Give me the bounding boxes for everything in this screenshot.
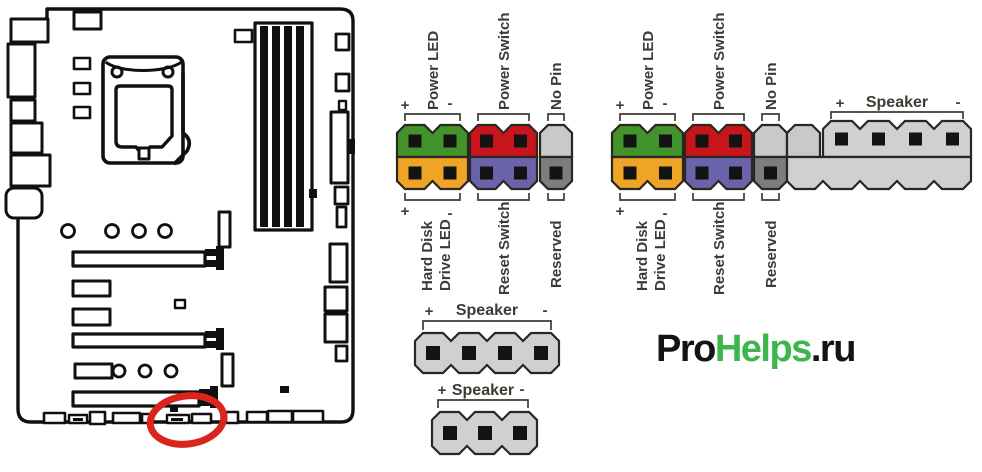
mounting-hole [106,225,119,238]
fan-header [74,12,101,29]
pin-hole [498,346,512,360]
no-pin-position [787,125,820,157]
speaker-bracket [831,112,963,119]
power-led-bracket [620,114,675,121]
no-pin-bracket [762,114,779,121]
small-component [280,386,289,393]
io-port [11,123,42,153]
bottom-header [113,413,140,423]
pin-hole [729,135,742,148]
pin-hole [835,133,848,146]
labels: + Speaker - [438,381,525,399]
plus-label: + [836,95,845,112]
io-port [11,155,50,186]
speaker-label: Speaker [456,302,518,319]
brackets [423,321,551,330]
speaker-label: Speaker [452,382,514,399]
bottom-header [226,412,238,423]
pin-hole [696,167,709,180]
labels: + Speaker - [425,302,548,320]
power-led-bracket [405,114,460,121]
power-switch-bracket [478,114,529,121]
logo-part-pro: Pro [656,328,715,370]
pin-hole [444,135,457,148]
power-switch-bracket [693,114,744,121]
small-component [175,300,185,308]
pin-hole [443,426,457,440]
hdd-led-bracket [405,193,460,200]
hdd-led-pins [612,157,683,189]
capacitor [74,83,90,94]
pin-hole [444,167,457,180]
prohelps-logo: ProHelps.ru [656,328,855,371]
pin-hole [480,135,493,148]
front-panel-speaker-connector-diagram: + - Power LED Power Switch No Pin + Spea… [608,0,982,300]
dimm-slot-bar [272,26,280,227]
no-pin-position [540,125,572,157]
pin-hole [409,167,422,180]
power-switch-label: Power Switch [496,12,513,110]
reset-switch-bracket [693,193,744,200]
dimm-slot-bar [284,26,292,227]
small-component [170,406,178,412]
plus-label: + [438,382,447,399]
speaker-bracket [438,400,528,408]
speaker-3pin-diagram: + Speaker - [400,378,600,472]
minus-label: - [543,302,548,319]
dimm-slot-bar [260,26,268,227]
edge-connector [336,74,349,91]
pin-hole [462,346,476,360]
minus-label: - [956,94,961,111]
hdd-led-label-line1: Hard Disk [419,220,436,291]
pin-hole [872,133,885,146]
capacitor [74,107,90,118]
minus-label: - [663,95,668,112]
reserved-bracket [548,193,564,200]
pcie-slot-short [73,281,110,296]
io-port [11,100,35,121]
slot-latch [216,246,224,270]
pin-hole [659,135,672,148]
plus-label: + [401,97,410,114]
speaker-bracket [423,321,551,330]
header-pins-detail [171,418,183,421]
edge-connector [335,187,348,204]
pin-hole [480,167,493,180]
sata-connector [325,314,347,342]
hdd-led-label-line1: Hard Disk [634,220,651,291]
pin-hole [514,135,527,148]
minus-label: - [448,95,453,112]
edge-connector [339,101,346,110]
mounting-hole [113,365,125,377]
plus-label: + [616,203,625,220]
hdd-led-pins [397,157,468,189]
pcie-slot [73,334,205,347]
no-pin-position [754,125,787,157]
power-led-label: Power LED [425,31,442,110]
bottom-header [90,412,105,424]
cpu-socket-tab [139,148,149,159]
io-port [11,19,48,42]
sata-connector [330,244,347,282]
reset-switch-bracket [478,193,529,200]
reset-switch-label: Reset Switch [496,202,513,295]
pcie-slot [73,252,205,266]
reserved-bracket [762,193,779,200]
blank-pin-area [787,157,971,189]
no-pin-bracket [548,114,564,121]
pin-hole [514,167,527,180]
pin-hole [624,135,637,148]
hdd-led-label-line2: Drive LED [652,219,669,291]
hdd-led-label-line2: Drive LED [437,219,454,291]
edge-connector [336,34,349,50]
header-pins-detail [73,418,83,421]
bottom-header [293,411,323,422]
pin-hole [478,426,492,440]
logo-part-ru: .ru [811,328,855,370]
m2-connector [219,212,230,247]
speaker-4pin-diagram: + Speaker - [393,295,603,385]
small-component [235,30,252,42]
motherboard-diagram [0,0,370,472]
mounting-hole [133,225,146,238]
reset-switch-label: Reset Switch [711,202,728,295]
power-switch-label: Power Switch [711,12,728,110]
mounting-hole [159,225,172,238]
edge-connector [336,346,347,361]
reserved-label: Reserved [548,220,565,288]
pcie-slot-short [75,364,112,378]
bottom-header [44,413,65,423]
pin-hole [659,167,672,180]
page: + - Power LED Power Switch No Pin + - Ha… [0,0,982,472]
minus-label: - [520,381,525,398]
cpu-socket-inner [116,86,172,152]
mounting-hole [165,365,177,377]
no-pin-label: No Pin [763,63,780,111]
pin-hole [946,133,959,146]
power-led-label: Power LED [640,31,657,110]
m2-connector [222,354,233,386]
capacitor [74,58,90,69]
reserved-label: Reserved [763,220,780,288]
speaker-label: Speaker [866,94,928,111]
pcie-slot-short [73,309,110,325]
front-panel-connector-diagram: + - Power LED Power Switch No Pin + - Ha… [390,0,590,300]
power-led-pins [397,125,468,157]
no-pin-label: No Pin [548,63,565,111]
pin-hole [513,426,527,440]
io-port [8,44,35,97]
bottom-header [192,414,211,423]
brackets [438,400,528,408]
hdd-led-bracket [620,193,675,200]
pin-hole [409,135,422,148]
pin-hole [729,167,742,180]
dimm-tab [309,189,317,198]
logo-part-helps: Helps [715,328,811,370]
plus-label: + [401,203,410,220]
pin-hole [550,167,563,180]
plus-label: + [616,97,625,114]
io-port [6,188,42,218]
atx-tab [348,139,355,154]
mounting-hole [62,225,75,238]
power-led-pins [612,125,683,157]
atx-power-connector [331,112,348,183]
dimm-slot-bar [296,26,304,227]
pin-hole [696,135,709,148]
pin-hole [624,167,637,180]
pin-hole [426,346,440,360]
sata-connector [325,287,347,311]
plus-label: + [425,303,434,320]
mounting-hole [139,365,151,377]
edge-connector [337,207,346,227]
slot-latch [216,328,224,350]
pin-hole [534,346,548,360]
pin-holes [443,426,527,440]
pin-hole [909,133,922,146]
bottom-header [247,412,267,422]
bottom-header [268,411,292,422]
pin-hole [764,167,777,180]
